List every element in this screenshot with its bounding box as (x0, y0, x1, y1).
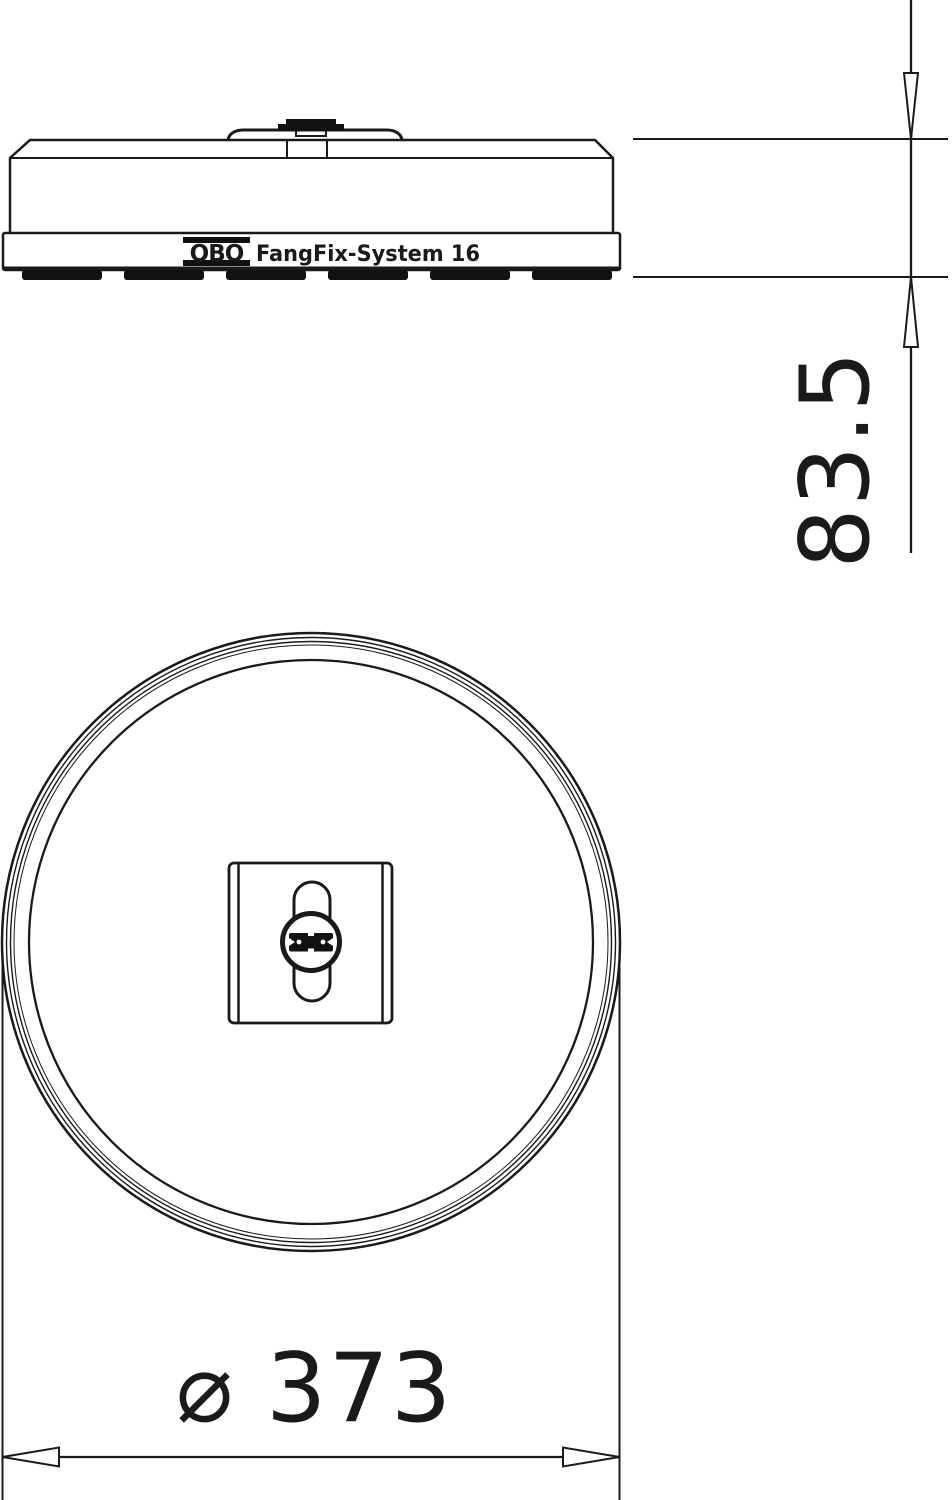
arrowhead-left-icon (3, 1448, 60, 1467)
clamp-tick-bottom (308, 949, 314, 952)
foot-pad (124, 270, 204, 280)
arrowhead-up-icon (904, 277, 918, 347)
foot-pad (430, 270, 510, 280)
foot-pad (226, 270, 306, 280)
arrowhead-right-icon (563, 1448, 620, 1467)
brand-logo-text: OBO (190, 241, 244, 267)
clamp-dot-left (297, 940, 302, 945)
foot-pad (532, 270, 612, 280)
clamp-wedge-top (289, 933, 333, 952)
product-label-text: FangFix-System 16 (256, 242, 480, 267)
side-view: OBO FangFix-System 16 (3, 119, 620, 280)
clamp-wedge-side (278, 119, 344, 131)
foot-pads (22, 270, 612, 280)
technical-drawing-page: OBO FangFix-System 16 83.5 (0, 0, 952, 1500)
clamp-tick-top (308, 933, 314, 936)
plinth-label: OBO FangFix-System 16 (183, 237, 480, 267)
arrowhead-down-icon (904, 73, 918, 139)
clamp-dot-right (321, 940, 326, 945)
diameter-symbol: ⌀ (176, 1334, 235, 1444)
technical-drawing-canvas: OBO FangFix-System 16 83.5 (0, 0, 952, 1500)
height-dimension: 83.5 (633, 0, 948, 569)
foot-pad (328, 270, 408, 280)
diameter-dimension-value: 373 (266, 1334, 453, 1444)
side-view-body (10, 140, 613, 233)
foot-pad (22, 270, 102, 280)
top-view (2, 633, 620, 1251)
height-dimension-value: 83.5 (781, 349, 891, 569)
